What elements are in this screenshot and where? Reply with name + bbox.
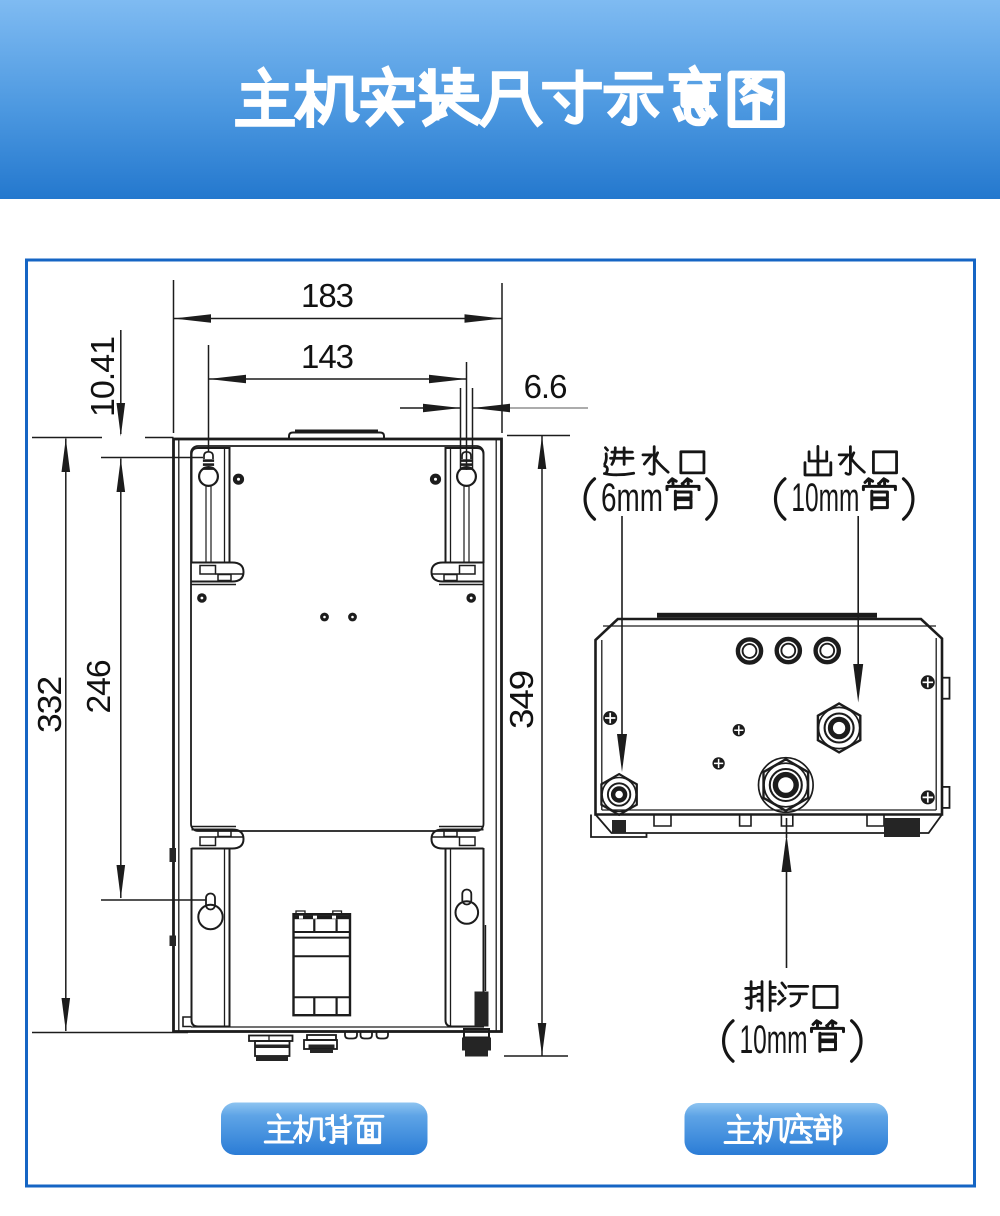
svg-text:246: 246 [80,661,117,714]
svg-text:6.6: 6.6 [524,368,567,405]
svg-text:10mm: 10mm [791,476,859,520]
svg-text:10mm: 10mm [740,1018,808,1062]
svg-text:332: 332 [31,677,68,733]
svg-text:6mm: 6mm [601,476,663,520]
svg-text:349: 349 [503,671,540,729]
svg-text:10.41: 10.41 [84,337,121,417]
svg-text:183: 183 [301,277,353,314]
svg-text:143: 143 [301,338,353,375]
